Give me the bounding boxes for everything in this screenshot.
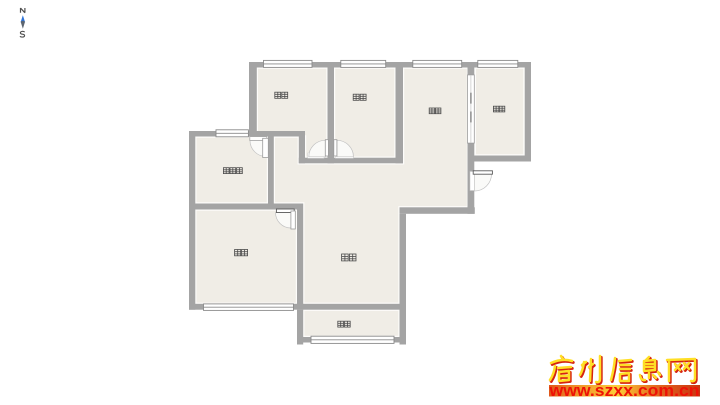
svg-text:www.szxx.com.cn: www.szxx.com.cn <box>548 382 699 400</box>
